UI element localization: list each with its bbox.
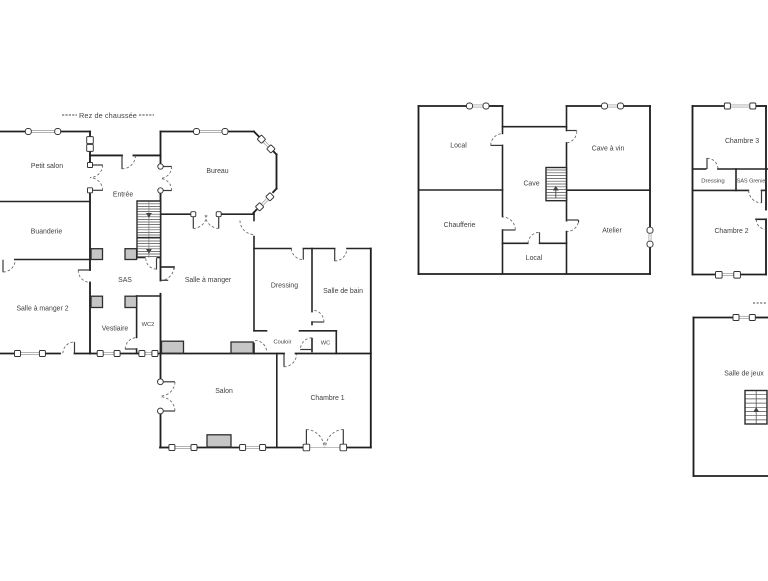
svg-text:Salle de jeux: Salle de jeux <box>724 371 764 378</box>
svg-text:Cave: Cave <box>523 181 539 188</box>
svg-text:Chambre 1: Chambre 1 <box>310 395 344 402</box>
svg-text:WC: WC <box>321 341 330 347</box>
svg-text:Atelier: Atelier <box>602 228 622 235</box>
svg-text:Salon: Salon <box>215 388 233 395</box>
svg-text:Salle à manger: Salle à manger <box>185 277 232 284</box>
svg-text:Local: Local <box>450 143 467 150</box>
svg-text:Salle de bain: Salle de bain <box>323 288 363 295</box>
svg-text:Vestiaire: Vestiaire <box>102 326 129 333</box>
svg-text:Salle à manger 2: Salle à manger 2 <box>16 306 68 313</box>
svg-text:Dressing: Dressing <box>701 179 725 185</box>
svg-text:Dressing: Dressing <box>271 283 298 290</box>
svg-text:Cave à vin: Cave à vin <box>592 146 625 153</box>
svg-text:Buanderie: Buanderie <box>31 228 63 235</box>
svg-text:Rez de chaussée: Rez de chaussée <box>79 111 137 120</box>
svg-text:Bureau: Bureau <box>206 168 228 175</box>
svg-text:SAS: SAS <box>118 277 132 284</box>
svg-text:Petit salon: Petit salon <box>31 163 63 170</box>
svg-text:Chaufferie: Chaufferie <box>444 222 476 229</box>
svg-text:WC2: WC2 <box>142 322 155 328</box>
svg-text:SAS Grenier: SAS Grenier <box>737 179 768 185</box>
svg-text:Entrée: Entrée <box>113 192 133 199</box>
svg-text:Couloir: Couloir <box>273 340 291 346</box>
svg-text:Local: Local <box>526 255 543 262</box>
svg-text:Chambre 2: Chambre 2 <box>714 228 748 235</box>
svg-text:Chambre 3: Chambre 3 <box>725 138 759 145</box>
